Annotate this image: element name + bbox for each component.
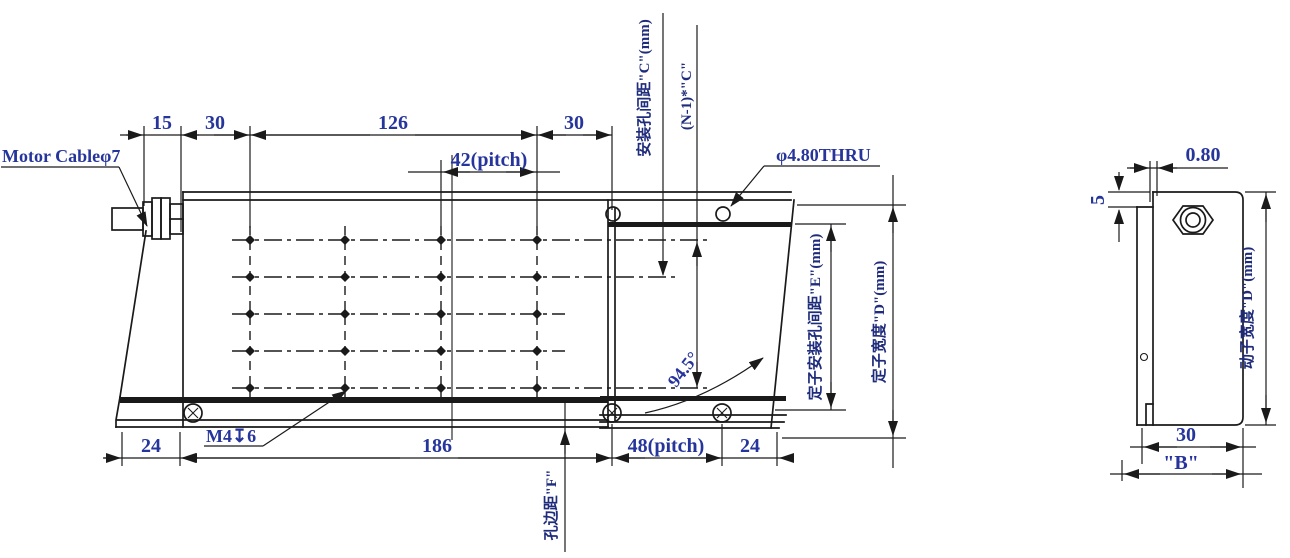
dim-5: 5 — [1087, 195, 1109, 205]
thru-hole-label: φ4.80THRU — [776, 145, 871, 165]
dim-30-left: 30 — [205, 112, 225, 134]
dim-48-pitch: 48(pitch) — [628, 435, 705, 457]
hex-nut — [1173, 206, 1213, 234]
dim-42-pitch: 42(pitch) — [451, 149, 528, 171]
stator-hole-spacing-label: 定子安装孔间距"E"(mm) — [806, 234, 824, 401]
cable-connector — [112, 198, 183, 239]
mover-width-label: 动子宽度"D"(mm) — [1238, 247, 1256, 369]
dim-080: 0.80 — [1186, 144, 1221, 166]
engineering-drawing-page: 94.5° 15 30 126 30 — [0, 0, 1290, 558]
dim-30-right: 30 — [564, 112, 584, 134]
motor-cable-callout: Motor Cableφ7 — [1, 146, 147, 226]
dim-15: 15 — [152, 112, 172, 134]
dim-30-side: 30 — [1176, 424, 1196, 446]
main-view: 94.5° 15 30 126 30 — [1, 13, 906, 552]
stator-width-label: 定子宽度"D"(mm) — [870, 261, 888, 383]
dim-b: "B" — [1163, 452, 1199, 474]
dim-126: 126 — [378, 112, 408, 134]
mover-cross-section — [1137, 192, 1243, 425]
thru-hole-callout: φ4.80THRU — [731, 145, 880, 206]
motor-cable-label: Motor Cableφ7 — [2, 146, 120, 166]
dim-24-left: 24 — [141, 435, 161, 457]
stator-width-d-dimension: 定子宽度"D"(mm) — [782, 175, 906, 468]
linear-motor-drawing: 94.5° 15 30 126 30 — [0, 0, 1290, 558]
stator-hole-spacing-e-dimension: 定子安装孔间距"E"(mm) — [775, 224, 846, 410]
gap-080-dimension: 0.80 — [1127, 144, 1228, 202]
thread-label: M4↧6 — [206, 426, 256, 446]
side-view: 0.80 5 动子宽度"D"(mm) 30 — [1087, 144, 1276, 488]
side-bottom-dimensions: 30 "B" — [1110, 424, 1262, 488]
total-spacing-label: (N-1)*"C" — [679, 62, 695, 130]
dim-24-right: 24 — [740, 435, 760, 457]
hole-spacing-c-label: 安装孔间距"C"(mm) — [635, 19, 653, 156]
mover-body — [116, 192, 791, 427]
hole-edge-label: 孔边距"F" — [543, 470, 560, 541]
hole-edge-f-annotation: 孔边距"F" — [543, 398, 565, 552]
angle-annotation: 94.5° — [645, 348, 763, 413]
dim-186: 186 — [422, 435, 452, 457]
